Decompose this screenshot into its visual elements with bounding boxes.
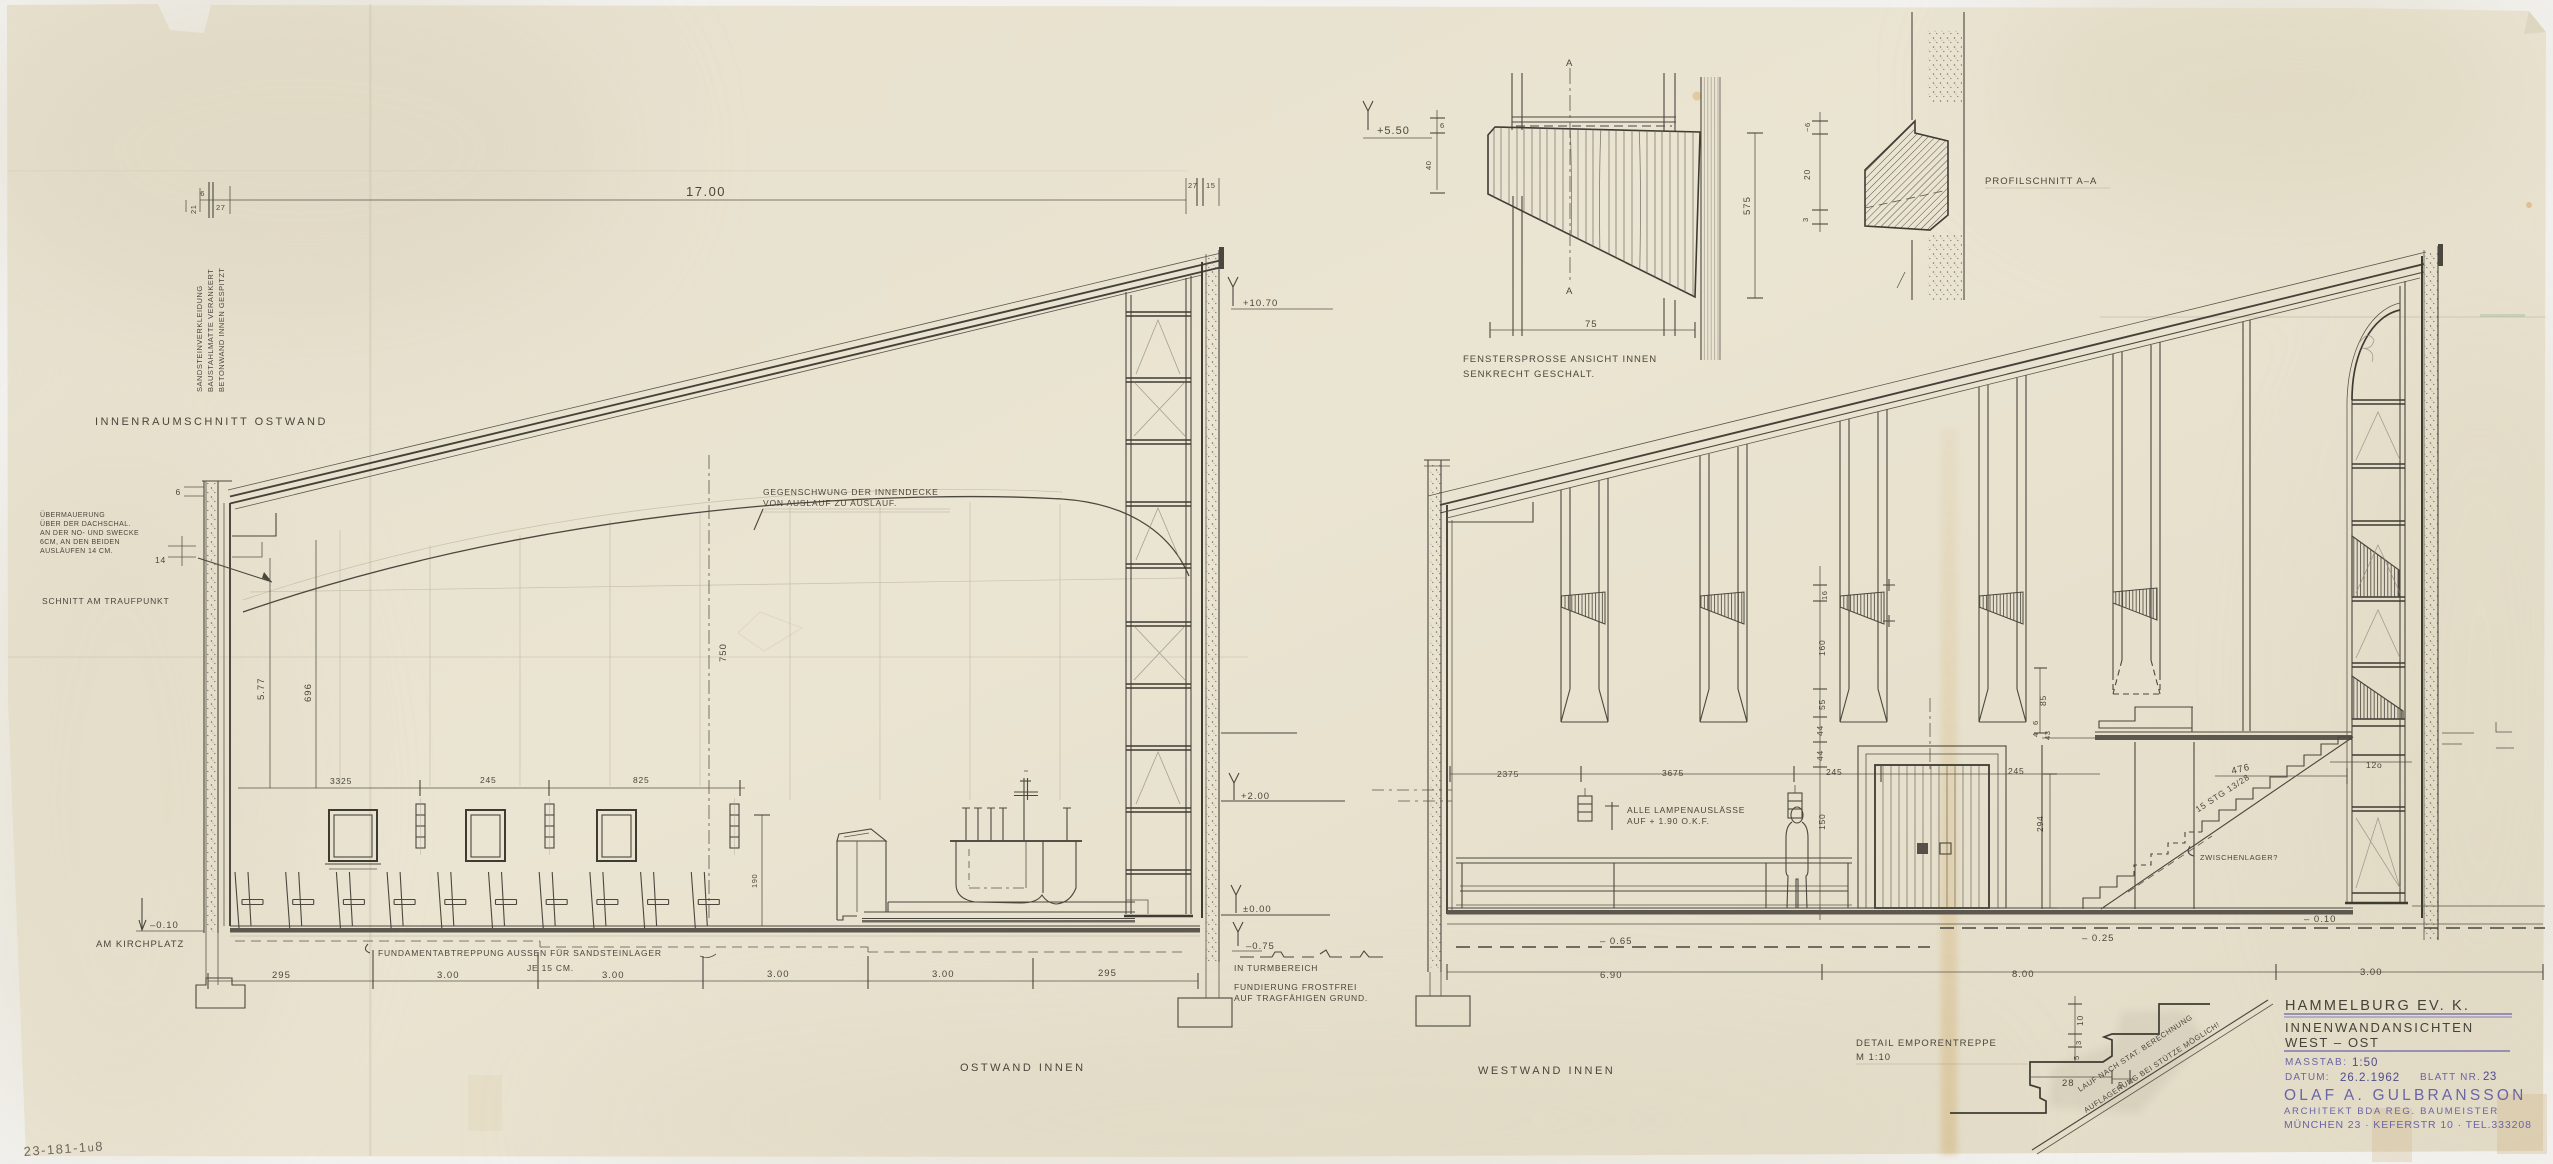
svg-text:150: 150 bbox=[1817, 813, 1827, 830]
svg-text:23: 23 bbox=[2483, 1071, 2497, 1083]
svg-text:ÜBERMAUERUNG: ÜBERMAUERUNG bbox=[40, 511, 105, 519]
svg-text:BLATT NR.: BLATT NR. bbox=[2420, 1072, 2481, 1083]
svg-text:26.2.1962: 26.2.1962 bbox=[2340, 1072, 2400, 1084]
svg-text:44: 44 bbox=[1815, 750, 1825, 761]
svg-text:5: 5 bbox=[2072, 1055, 2081, 1060]
svg-text:17.00: 17.00 bbox=[686, 184, 726, 199]
svg-text:3.00: 3.00 bbox=[602, 970, 625, 981]
svg-text:750: 750 bbox=[718, 643, 729, 662]
svg-text:INNENRAUMSCHNITT OSTWAND: INNENRAUMSCHNITT OSTWAND bbox=[95, 416, 328, 428]
svg-text:295: 295 bbox=[1098, 968, 1117, 979]
svg-text:27: 27 bbox=[1188, 181, 1198, 190]
svg-text:SANDSTEINVERKLEIDUNG: SANDSTEINVERKLEIDUNG bbox=[195, 285, 204, 392]
svg-text:2375: 2375 bbox=[1497, 769, 1519, 779]
svg-text:OLAF A. GULBRANSSON: OLAF A. GULBRANSSON bbox=[2284, 1087, 2527, 1104]
svg-text:FUNDAMENTABTREPPUNG AUSSEN F: FUNDAMENTABTREPPUNG AUSSEN FÜR SANDSTEIN… bbox=[378, 948, 662, 958]
svg-text:3: 3 bbox=[2074, 1040, 2083, 1045]
svg-text:10: 10 bbox=[2075, 1015, 2085, 1026]
svg-text:14: 14 bbox=[155, 555, 166, 565]
svg-text:VON AUSLAUF ZU AUSLAUF.: VON AUSLAUF ZU AUSLAUF. bbox=[763, 498, 897, 508]
svg-text:696: 696 bbox=[303, 683, 314, 702]
svg-text:A: A bbox=[1566, 286, 1573, 297]
svg-text:ÜBER DER DACHSCHAL.: ÜBER DER DACHSCHAL. bbox=[40, 520, 131, 528]
svg-text:3.00: 3.00 bbox=[437, 970, 460, 981]
svg-text:3675: 3675 bbox=[1662, 768, 1684, 778]
svg-text:WESTWAND INNEN: WESTWAND INNEN bbox=[1478, 1065, 1615, 1077]
svg-text:8.00: 8.00 bbox=[2012, 969, 2035, 980]
svg-text:+5.50: +5.50 bbox=[1377, 125, 1410, 137]
svg-text:575: 575 bbox=[1742, 196, 1753, 215]
svg-text:3.00: 3.00 bbox=[932, 969, 955, 980]
svg-text:SENKRECHT GESCHALT.: SENKRECHT GESCHALT. bbox=[1463, 369, 1595, 380]
svg-text:6CM, AN DEN BEIDEN: 6CM, AN DEN BEIDEN bbox=[40, 539, 120, 546]
svg-text:294: 294 bbox=[2035, 815, 2045, 832]
svg-text:WEST – OST: WEST – OST bbox=[2285, 1035, 2380, 1050]
svg-text:6.90: 6.90 bbox=[1600, 970, 1623, 981]
svg-text:12o: 12o bbox=[2366, 760, 2383, 770]
svg-text:55: 55 bbox=[1817, 699, 1827, 710]
svg-text:FUNDIERUNG FROSTFREI: FUNDIERUNG FROSTFREI bbox=[1234, 982, 1357, 992]
svg-text:6: 6 bbox=[2031, 720, 2040, 725]
svg-text:85: 85 bbox=[2038, 695, 2048, 706]
svg-text:SCHNITT AM TRAUFPUNKT: SCHNITT AM TRAUFPUNKT bbox=[42, 596, 169, 606]
svg-text:MÜNCHEN 23 · KEFERSTR 10 · TEL: MÜNCHEN 23 · KEFERSTR 10 · TEL.333208 bbox=[2284, 1119, 2532, 1131]
svg-text:ALLE LAMPENAUSLÄSSE: ALLE LAMPENAUSLÄSSE bbox=[1627, 805, 1745, 815]
svg-text:±0.00: ±0.00 bbox=[1243, 904, 1272, 915]
svg-text:6: 6 bbox=[175, 487, 181, 497]
svg-text:43: 43 bbox=[2043, 730, 2052, 740]
svg-text:~6: ~6 bbox=[1803, 122, 1812, 132]
svg-text:INNENWANDANSICHTEN: INNENWANDANSICHTEN bbox=[2285, 1020, 2474, 1035]
svg-text:40: 40 bbox=[1424, 160, 1433, 170]
svg-text:+10.70: +10.70 bbox=[1243, 298, 1278, 309]
svg-text:MASSTAB:: MASSTAB: bbox=[2285, 1057, 2348, 1068]
svg-text:ZWISCHENLAGER?: ZWISCHENLAGER? bbox=[2200, 853, 2278, 862]
svg-text:+2.00: +2.00 bbox=[1241, 791, 1270, 802]
svg-text:– 0.10: – 0.10 bbox=[2304, 914, 2336, 925]
svg-text:190: 190 bbox=[750, 874, 759, 888]
svg-text:– 0.65: – 0.65 bbox=[1600, 936, 1632, 947]
svg-text:3.00: 3.00 bbox=[767, 969, 790, 980]
svg-text:245: 245 bbox=[1826, 767, 1843, 777]
svg-text:3: 3 bbox=[1801, 217, 1810, 222]
svg-text:245: 245 bbox=[480, 775, 497, 785]
svg-text:75: 75 bbox=[1585, 319, 1598, 330]
svg-text:PROFILSCHNITT A–A: PROFILSCHNITT A–A bbox=[1985, 176, 2097, 187]
svg-text:FENSTERSPROSSE ANSICHT INNEN: FENSTERSPROSSE ANSICHT INNEN bbox=[1463, 354, 1657, 365]
svg-text:– 0.25: – 0.25 bbox=[2082, 933, 2114, 944]
svg-text:20: 20 bbox=[1802, 169, 1812, 180]
svg-text:295: 295 bbox=[272, 970, 291, 981]
svg-text:AUSLÄUFEN 14 CM.: AUSLÄUFEN 14 CM. bbox=[40, 547, 113, 555]
svg-text:16: 16 bbox=[1820, 590, 1829, 600]
svg-text:GEGENSCHWUNG DER INNENDECKE: GEGENSCHWUNG DER INNENDECKE bbox=[763, 487, 939, 497]
svg-text:AN DER NO- UND SWECKE: AN DER NO- UND SWECKE bbox=[40, 530, 139, 537]
svg-text:–0.10: –0.10 bbox=[150, 920, 179, 931]
svg-text:IN TURMBEREICH: IN TURMBEREICH bbox=[1234, 963, 1318, 973]
svg-text:44: 44 bbox=[1815, 725, 1825, 736]
svg-text:DATUM:: DATUM: bbox=[2285, 1072, 2330, 1083]
svg-text:OSTWAND INNEN: OSTWAND INNEN bbox=[960, 1062, 1086, 1074]
svg-text:1:50: 1:50 bbox=[2352, 1057, 2378, 1069]
svg-text:27: 27 bbox=[216, 203, 226, 212]
svg-text:6: 6 bbox=[200, 189, 205, 198]
svg-text:28: 28 bbox=[2062, 1078, 2075, 1089]
svg-text:21: 21 bbox=[189, 204, 198, 214]
svg-text:BETONWAND INNEN GESPITZT: BETONWAND INNEN GESPITZT bbox=[217, 267, 226, 392]
svg-text:ARCHITEKT BDA REG. BAUMEISTER: ARCHITEKT BDA REG. BAUMEISTER bbox=[2284, 1106, 2499, 1117]
svg-text:5.77: 5.77 bbox=[256, 678, 267, 701]
svg-text:6: 6 bbox=[1440, 121, 1445, 130]
svg-text:AUF + 1.90 O.K.F.: AUF + 1.90 O.K.F. bbox=[1627, 816, 1710, 826]
svg-text:HAMMELBURG EV. K.: HAMMELBURG EV. K. bbox=[2285, 998, 2470, 1014]
svg-text:AM KIRCHPLATZ: AM KIRCHPLATZ bbox=[96, 939, 184, 950]
svg-text:160: 160 bbox=[1817, 639, 1827, 656]
svg-text:15: 15 bbox=[1206, 181, 1216, 190]
svg-text:M 1:10: M 1:10 bbox=[1856, 1052, 1891, 1063]
svg-text:AUF TRAGFÄHIGEN GRUND.: AUF TRAGFÄHIGEN GRUND. bbox=[1234, 993, 1368, 1003]
svg-text:–0.75: –0.75 bbox=[1246, 941, 1275, 952]
svg-text:825: 825 bbox=[633, 775, 650, 785]
svg-text:3325: 3325 bbox=[330, 776, 352, 786]
svg-text:3.00: 3.00 bbox=[2360, 967, 2383, 978]
svg-text:DETAIL EMPORENTREPPE: DETAIL EMPORENTREPPE bbox=[1856, 1038, 1997, 1049]
svg-text:245: 245 bbox=[2008, 766, 2025, 776]
svg-text:JE 15 CM.: JE 15 CM. bbox=[527, 963, 574, 973]
svg-text:BAUSTAHLMATTE VERANKERT: BAUSTAHLMATTE VERANKERT bbox=[206, 269, 215, 392]
svg-text:4: 4 bbox=[2031, 732, 2040, 737]
svg-text:A: A bbox=[1566, 58, 1573, 69]
